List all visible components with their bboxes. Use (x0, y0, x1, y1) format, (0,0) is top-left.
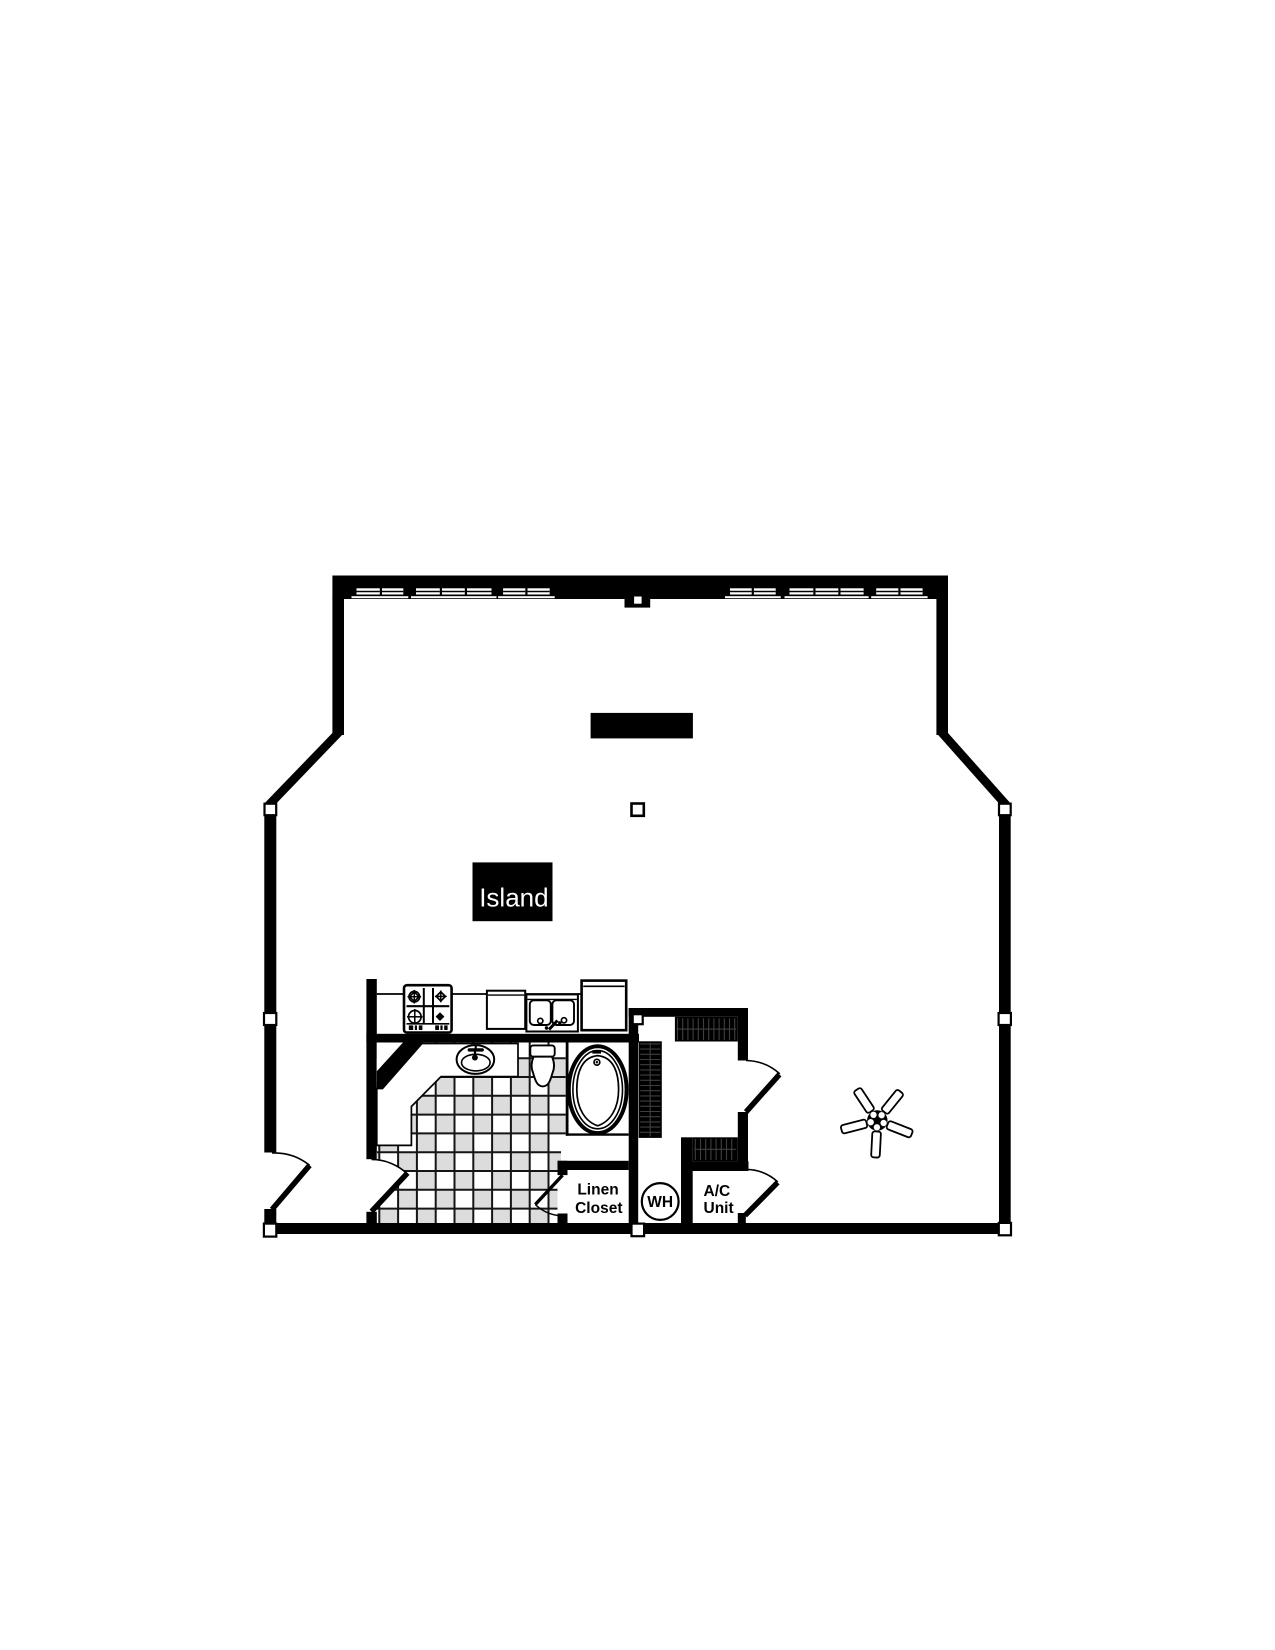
svg-text:A/C: A/C (704, 1183, 731, 1200)
svg-text:Closet: Closet (575, 1200, 622, 1217)
svg-text:Island: Island (479, 883, 548, 913)
svg-text:Unit: Unit (704, 1200, 734, 1217)
svg-text:Linen: Linen (577, 1182, 618, 1199)
svg-text:WH: WH (647, 1194, 673, 1211)
